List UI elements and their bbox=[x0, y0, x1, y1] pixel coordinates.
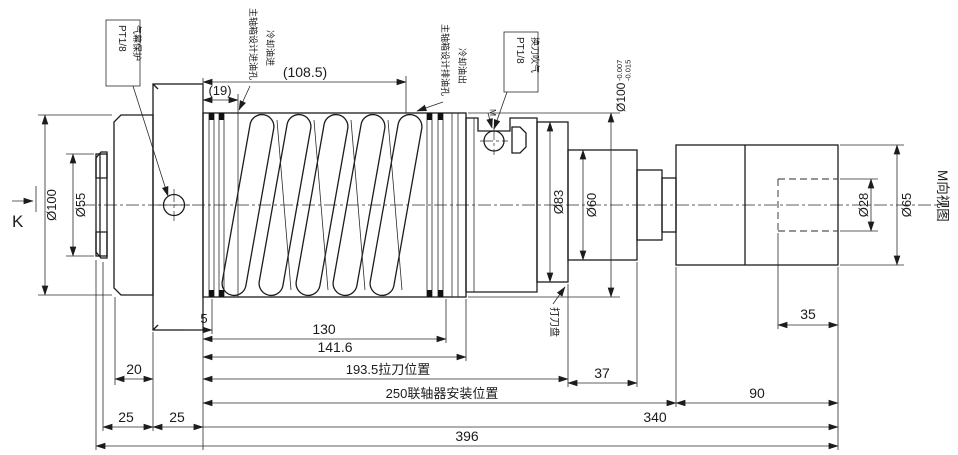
dim-25-a: 25 bbox=[118, 409, 134, 425]
k-view-marker: K bbox=[12, 186, 36, 231]
dim-5: 5 bbox=[200, 311, 207, 326]
knockout-disc-callout: 打刀盘 bbox=[548, 287, 565, 337]
m-marker-text: M bbox=[488, 109, 498, 116]
air-curtain-port: PT1/8 bbox=[116, 25, 127, 52]
dim-90: 90 bbox=[749, 385, 765, 401]
dim-108-5: (108.5) bbox=[283, 64, 327, 80]
dim-dia-100-left: Ø100 bbox=[44, 189, 59, 221]
dim-141-6: 141.6 bbox=[317, 339, 352, 355]
air-curtain-callout: 气幕保护 PT1/8 bbox=[106, 20, 168, 196]
oil-outlet-main: 主轴箱设计排油孔 bbox=[440, 24, 451, 96]
dim-dia-100-toleranced: Ø100 -0.007 -0.015 bbox=[614, 60, 633, 112]
dim-dia-100-tol-lower: -0.015 bbox=[624, 60, 633, 81]
oil-inlet-callout: 主轴箱设计进油孔 冷却油进 bbox=[239, 8, 276, 110]
dim-396: 396 bbox=[455, 428, 479, 444]
dimensions: (19) (108.5) 5 130 141.6 20 193.5拉刀位置 37… bbox=[44, 60, 914, 446]
oil-outlet-callout: 主轴箱设计排油孔 冷却油出 bbox=[417, 24, 468, 111]
spindle-front-view bbox=[96, 84, 838, 330]
dim-340: 340 bbox=[643, 409, 667, 425]
dim-130: 130 bbox=[312, 321, 336, 337]
air-curtain-text: 气幕保护 bbox=[132, 25, 143, 61]
k-view-text: K bbox=[12, 212, 24, 231]
dim-dia-65: Ø65 bbox=[899, 193, 914, 218]
dim-20: 20 bbox=[126, 361, 142, 377]
oil-inlet-main: 主轴箱设计进油孔 bbox=[248, 8, 259, 80]
spindle-assembly-drawing: (19) (108.5) 5 130 141.6 20 193.5拉刀位置 37… bbox=[0, 0, 958, 455]
m-view-marker: M bbox=[488, 109, 498, 128]
tool-blow-callout: 换刀吹气 PT1/8 bbox=[494, 32, 541, 129]
dim-dia-60: Ø60 bbox=[584, 193, 599, 218]
dim-dia-55: Ø55 bbox=[73, 193, 88, 218]
oil-outlet-sub: 冷却油出 bbox=[457, 48, 468, 84]
dim-dia-100-tol-base: Ø100 bbox=[614, 82, 628, 112]
dim-250-coupling-position: 250联轴器安装位置 bbox=[386, 386, 499, 401]
dim-dia-28: Ø28 bbox=[856, 193, 871, 218]
dim-37: 37 bbox=[594, 365, 610, 381]
knockout-disc-text: 打刀盘 bbox=[548, 307, 561, 337]
centerlines bbox=[82, 127, 948, 221]
dim-19: (19) bbox=[208, 83, 231, 98]
oil-inlet-sub: 冷却油进 bbox=[265, 30, 276, 66]
dim-25-b: 25 bbox=[169, 409, 185, 425]
dim-35: 35 bbox=[800, 306, 816, 322]
dim-193-5-broach-position: 193.5拉刀位置 bbox=[346, 362, 431, 377]
m-view-title: M向视图 bbox=[935, 170, 950, 222]
tool-blow-text: 换刀吹气 bbox=[530, 37, 541, 73]
dim-dia-83: Ø83 bbox=[551, 190, 566, 215]
tool-blow-port: PT1/8 bbox=[514, 37, 525, 64]
